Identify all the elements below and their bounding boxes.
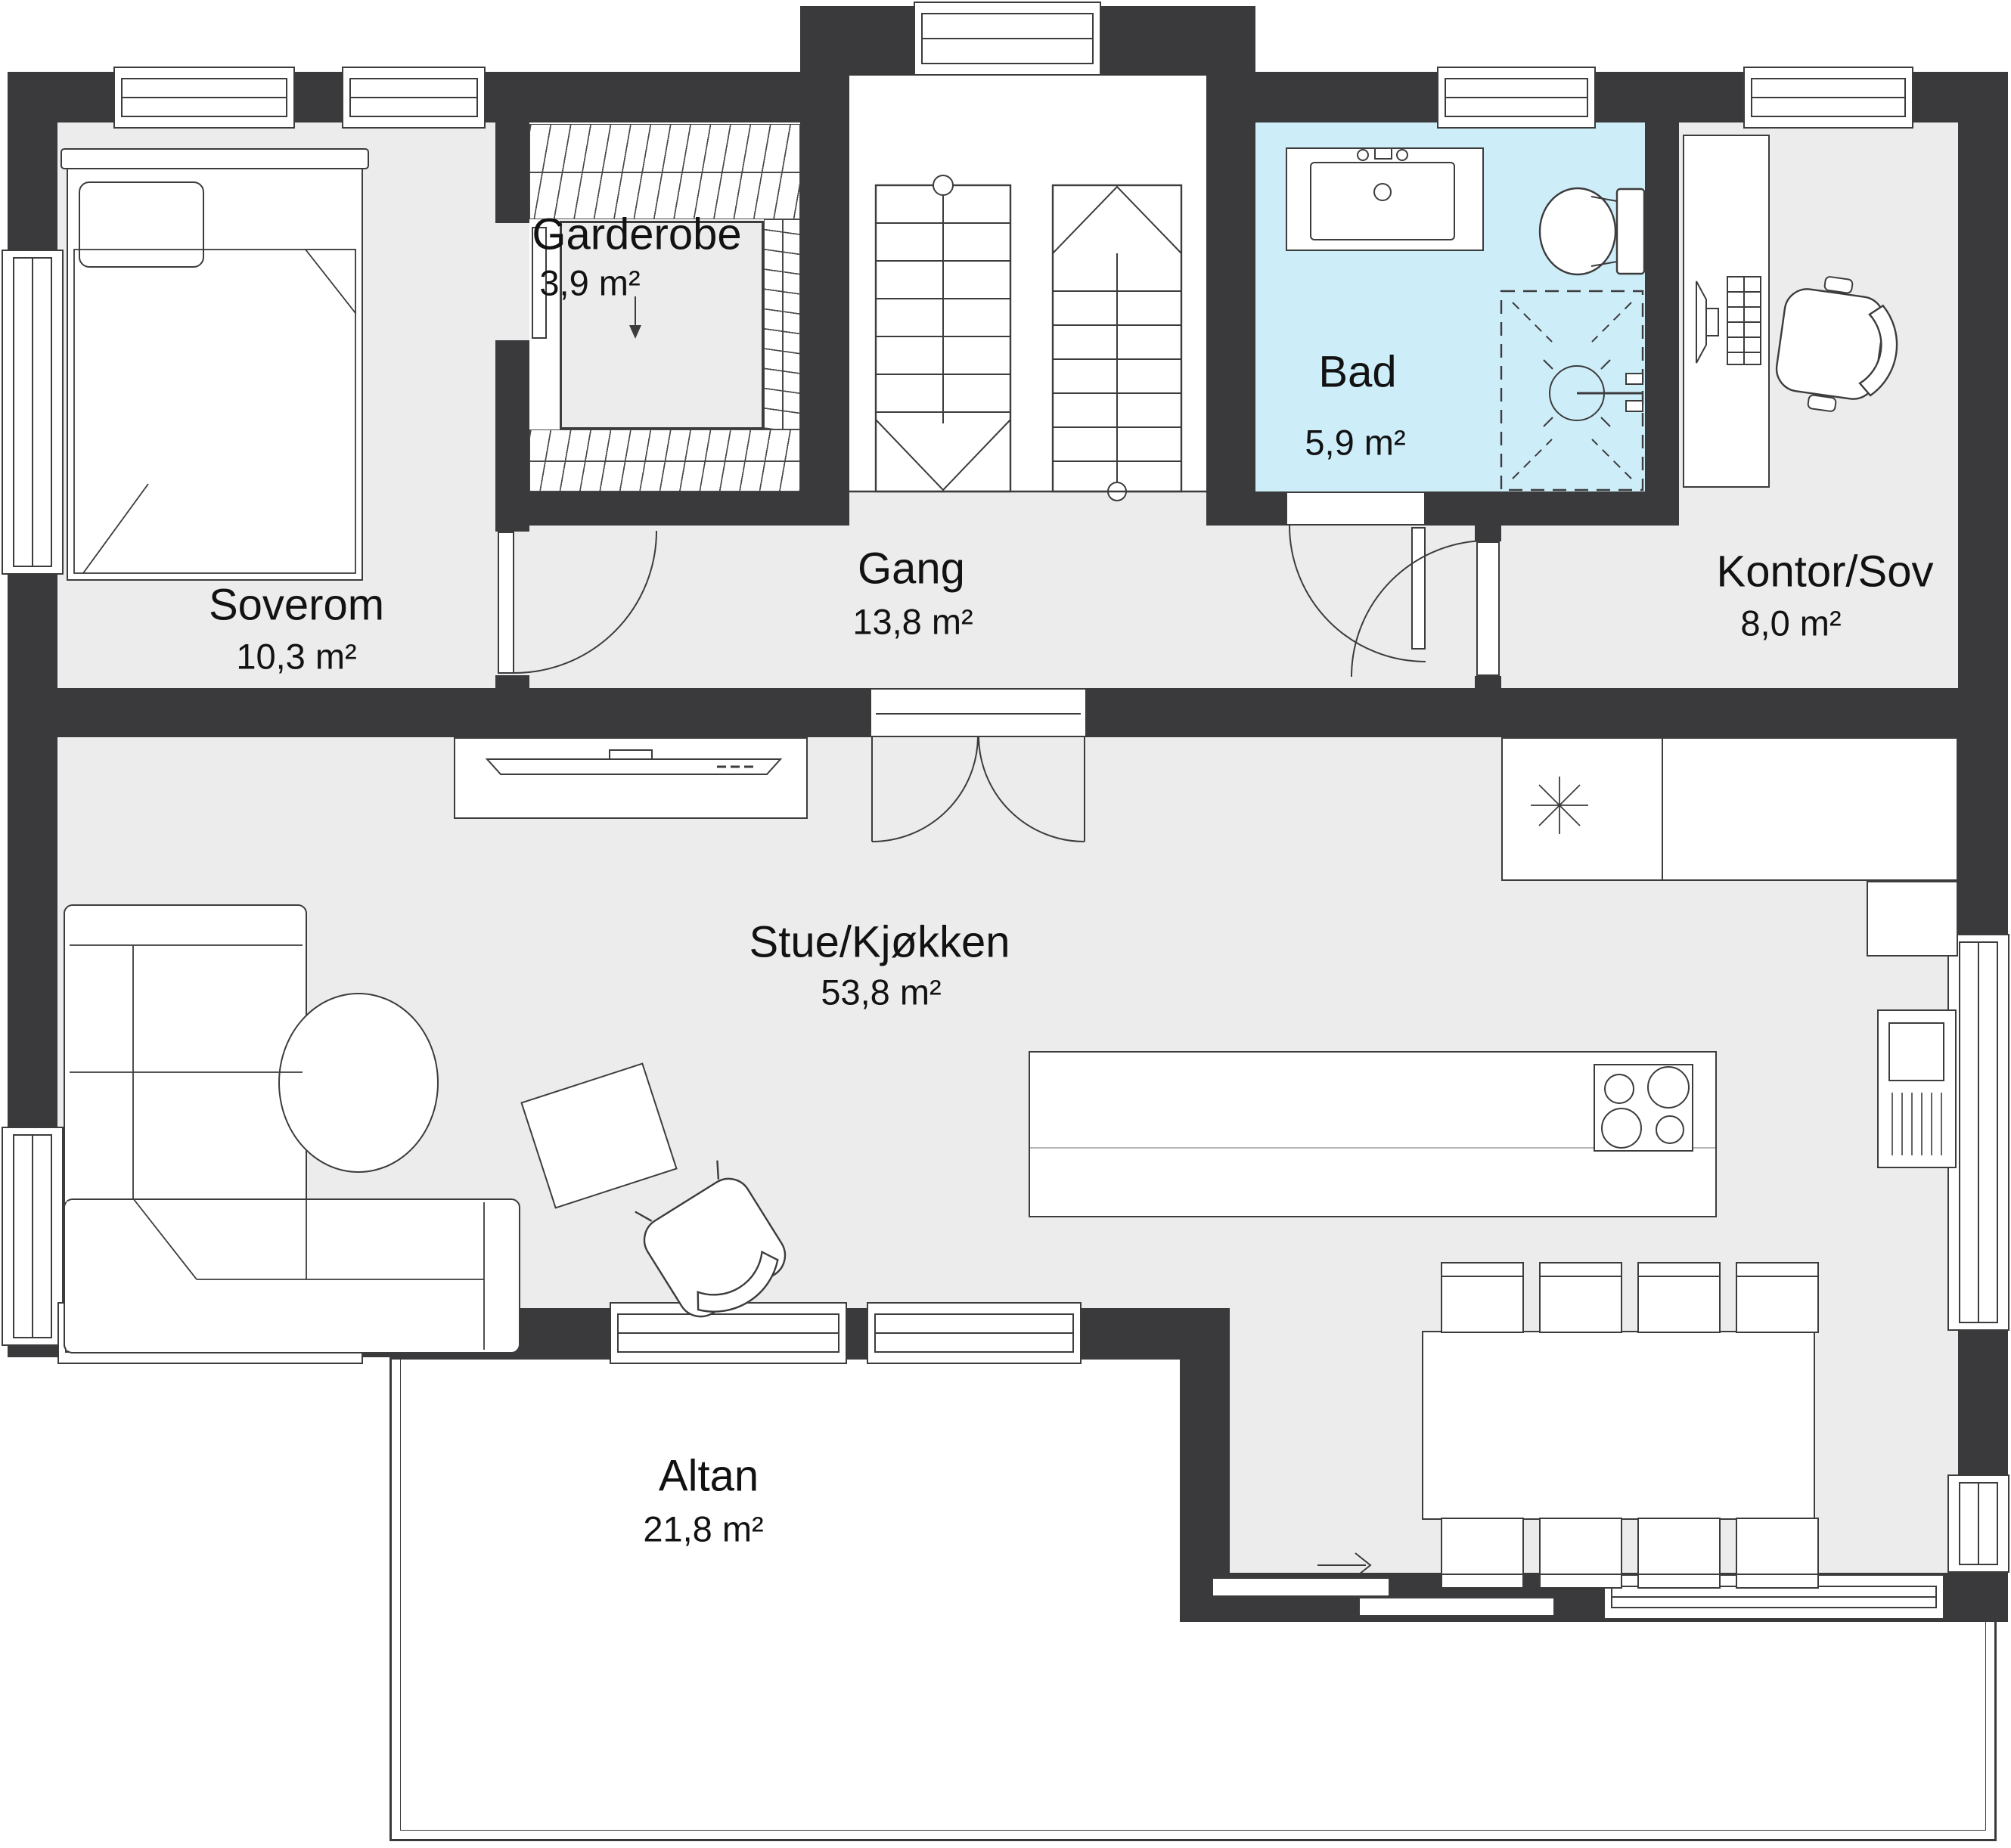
window-kitchen-right [1947, 934, 2009, 1331]
wall-gang-stue-right [1087, 688, 1958, 737]
window-stairwell [914, 2, 1101, 76]
room-label-kontor: Kontor/Sov [1717, 547, 1934, 597]
dining-table [1422, 1331, 1815, 1520]
closet-right [764, 219, 800, 429]
wall-stair-bad [1206, 122, 1255, 526]
room-label-soverom: Soverom [209, 580, 384, 631]
fireplace [1877, 1009, 1957, 1168]
room-area-altan: 21,8 m² [643, 1508, 763, 1550]
floor-stairwell [849, 76, 1206, 491]
double-door-threshold [870, 688, 1087, 737]
room-area-garderobe: 3,9 m² [539, 262, 640, 304]
bed-headboard [61, 148, 369, 169]
wall-garderobe-gang [529, 491, 849, 526]
room-label-garderobe: Garderobe [532, 209, 741, 260]
room-label-stue: Stue/Kjøkken [749, 917, 1010, 968]
door-leaf-soverom [498, 532, 514, 674]
desk [1683, 135, 1770, 488]
room-area-soverom: 10,3 m² [236, 636, 356, 677]
sofa-joint [67, 1202, 305, 1350]
wall-bad-right [1645, 122, 1679, 526]
door-leaf-kontor [1476, 541, 1500, 676]
room-area-bad: 5,9 m² [1305, 422, 1405, 464]
room-label-bad: Bad [1318, 347, 1396, 398]
window-dining-bottom [1603, 1574, 1944, 1620]
tv-bench [454, 737, 808, 819]
window-soverom-1 [113, 67, 295, 129]
door-leaf-bad [1411, 527, 1426, 650]
room-label-gang: Gang [858, 544, 965, 594]
room-area-kontor: 8,0 m² [1740, 603, 1841, 644]
sliding-door-panel-inner [1358, 1597, 1555, 1617]
window-soverom-2 [342, 67, 486, 129]
room-area-gang: 13,8 m² [852, 601, 973, 643]
closet-bottom [529, 429, 800, 491]
window-dining-right [1947, 1474, 2009, 1573]
room-area-stue: 53,8 m² [821, 972, 941, 1013]
coffee-table [278, 993, 439, 1173]
wall-right [1958, 72, 2008, 1622]
wall-garderobe-stair [800, 122, 849, 526]
window-stue-left [2, 1127, 64, 1346]
wall-gang-stue-left [8, 688, 870, 737]
kitchen-island [1029, 1051, 1717, 1217]
kitchen-counter-corner [1867, 881, 1958, 957]
door-threshold-bad [1286, 491, 1426, 526]
floor-plan: Soverom 10,3 m² Garderobe 3,9 m² Gang 13… [0, 0, 2011, 1848]
window-kontor [1743, 67, 1913, 129]
sliding-door-panel-outer [1212, 1577, 1390, 1597]
window-soverom-left [2, 250, 64, 575]
window-bad [1437, 67, 1596, 129]
closet-top [529, 124, 800, 219]
pillow [79, 181, 204, 268]
kitchen-counter [1501, 737, 1958, 881]
room-label-altan: Altan [659, 1451, 759, 1502]
window-stue-bottom-2 [610, 1302, 847, 1364]
window-stue-bottom-3 [867, 1302, 1082, 1364]
bathroom-basin [1310, 162, 1455, 240]
door-opening-soverom-garderobe [495, 223, 529, 340]
